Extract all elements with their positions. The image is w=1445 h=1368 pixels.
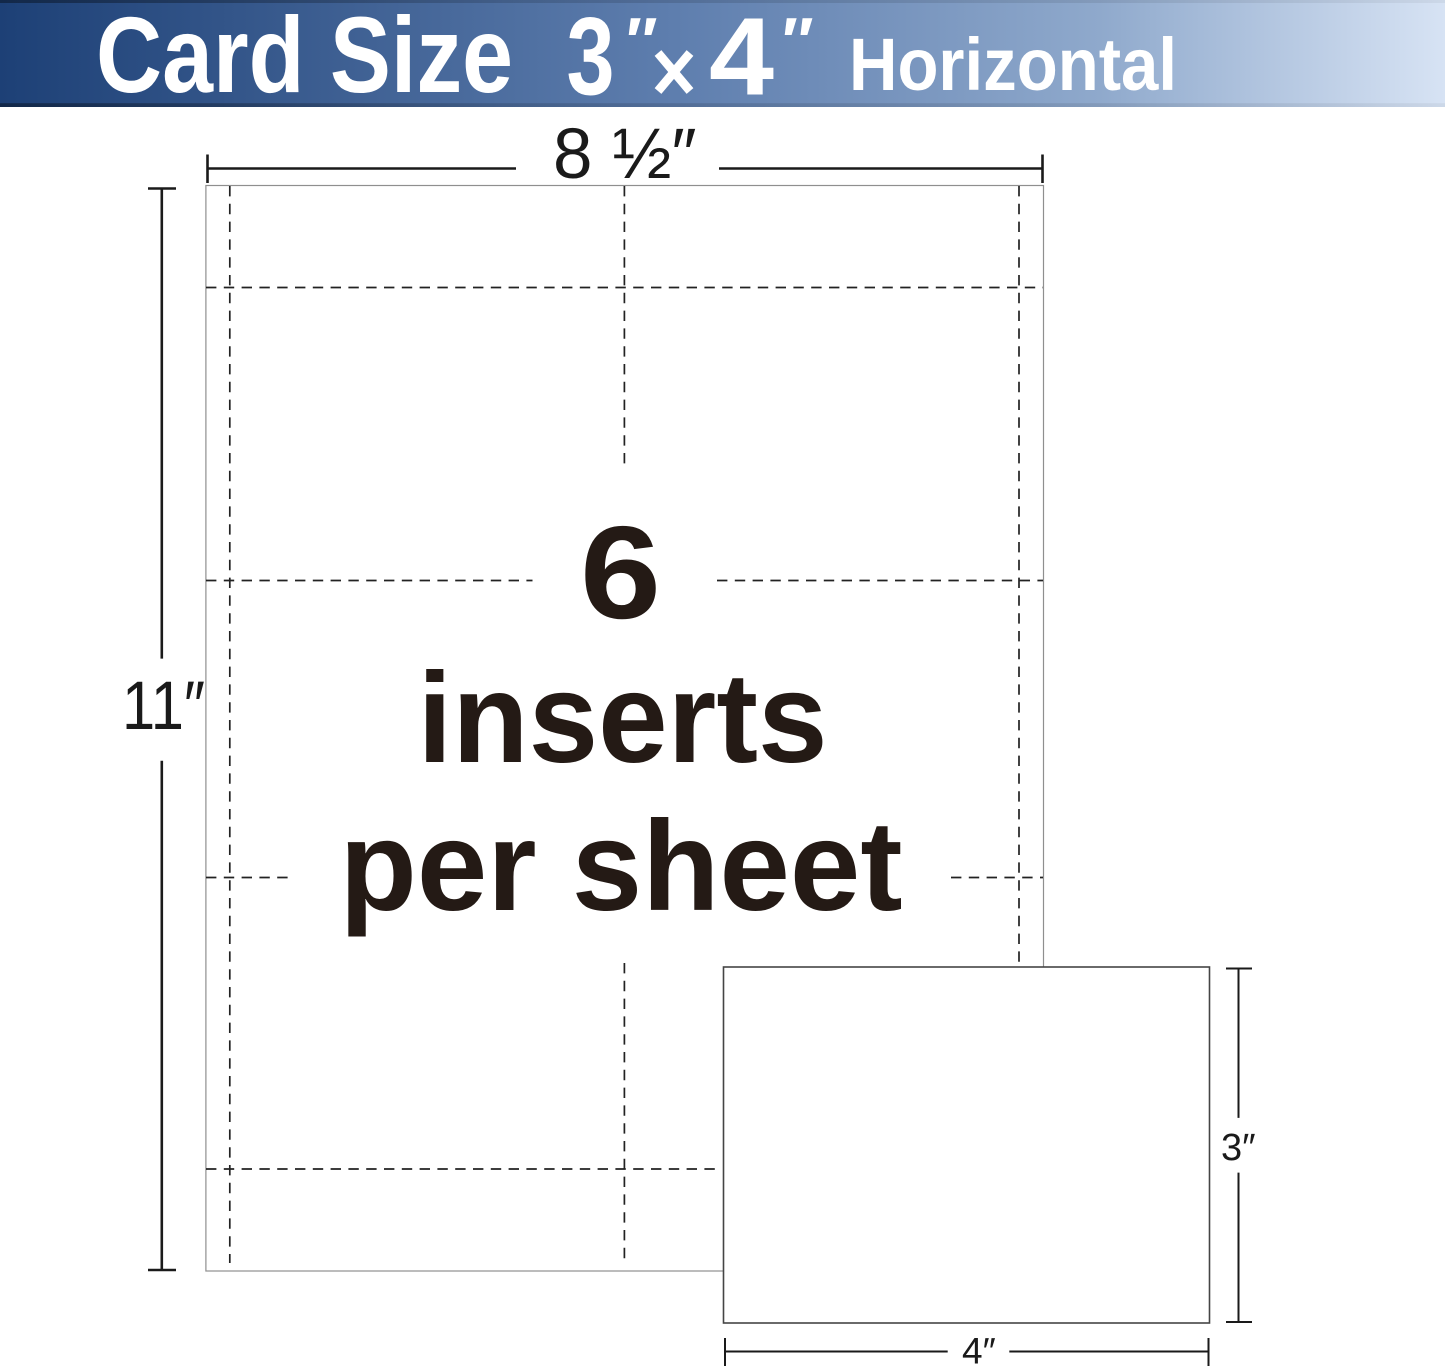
svg-text:inserts: inserts [418, 647, 828, 790]
svg-text:Card Size: Card Size [96, 0, 513, 115]
svg-text:per sheet: per sheet [340, 795, 903, 938]
svg-text:6: 6 [580, 499, 661, 646]
svg-text:11″: 11″ [122, 667, 205, 744]
svg-text:″: ″ [626, 4, 658, 78]
svg-text:Horizontal: Horizontal [849, 23, 1177, 106]
svg-text:3″: 3″ [1221, 1127, 1256, 1169]
svg-text:4″: 4″ [962, 1331, 996, 1368]
svg-text:″: ″ [782, 4, 814, 78]
svg-text:8 ½″: 8 ½″ [553, 115, 697, 194]
svg-text:3: 3 [567, 0, 615, 119]
svg-text:4: 4 [709, 0, 774, 119]
